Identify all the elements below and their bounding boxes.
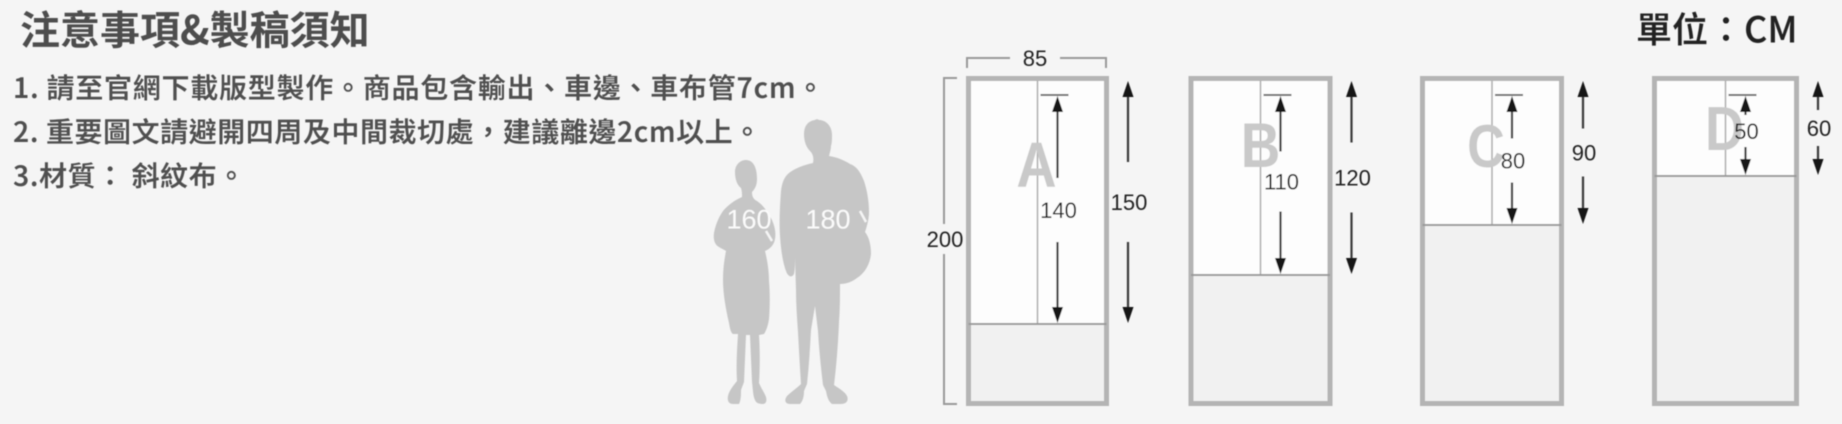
svg-text:90: 90: [1572, 140, 1596, 165]
svg-text:150: 150: [1111, 190, 1148, 215]
svg-text:C: C: [1467, 113, 1505, 180]
svg-text:60: 60: [1807, 116, 1831, 141]
svg-text:180: 180: [805, 205, 850, 235]
svg-text:110: 110: [1264, 169, 1299, 194]
svg-text:85: 85: [1023, 46, 1047, 71]
svg-text:140: 140: [1040, 198, 1077, 223]
svg-text:A: A: [1016, 129, 1056, 200]
svg-text:50: 50: [1734, 119, 1758, 144]
svg-text:80: 80: [1501, 148, 1525, 173]
svg-text:160: 160: [726, 205, 771, 235]
svg-text:200: 200: [927, 227, 964, 252]
svg-text:120: 120: [1334, 165, 1371, 190]
